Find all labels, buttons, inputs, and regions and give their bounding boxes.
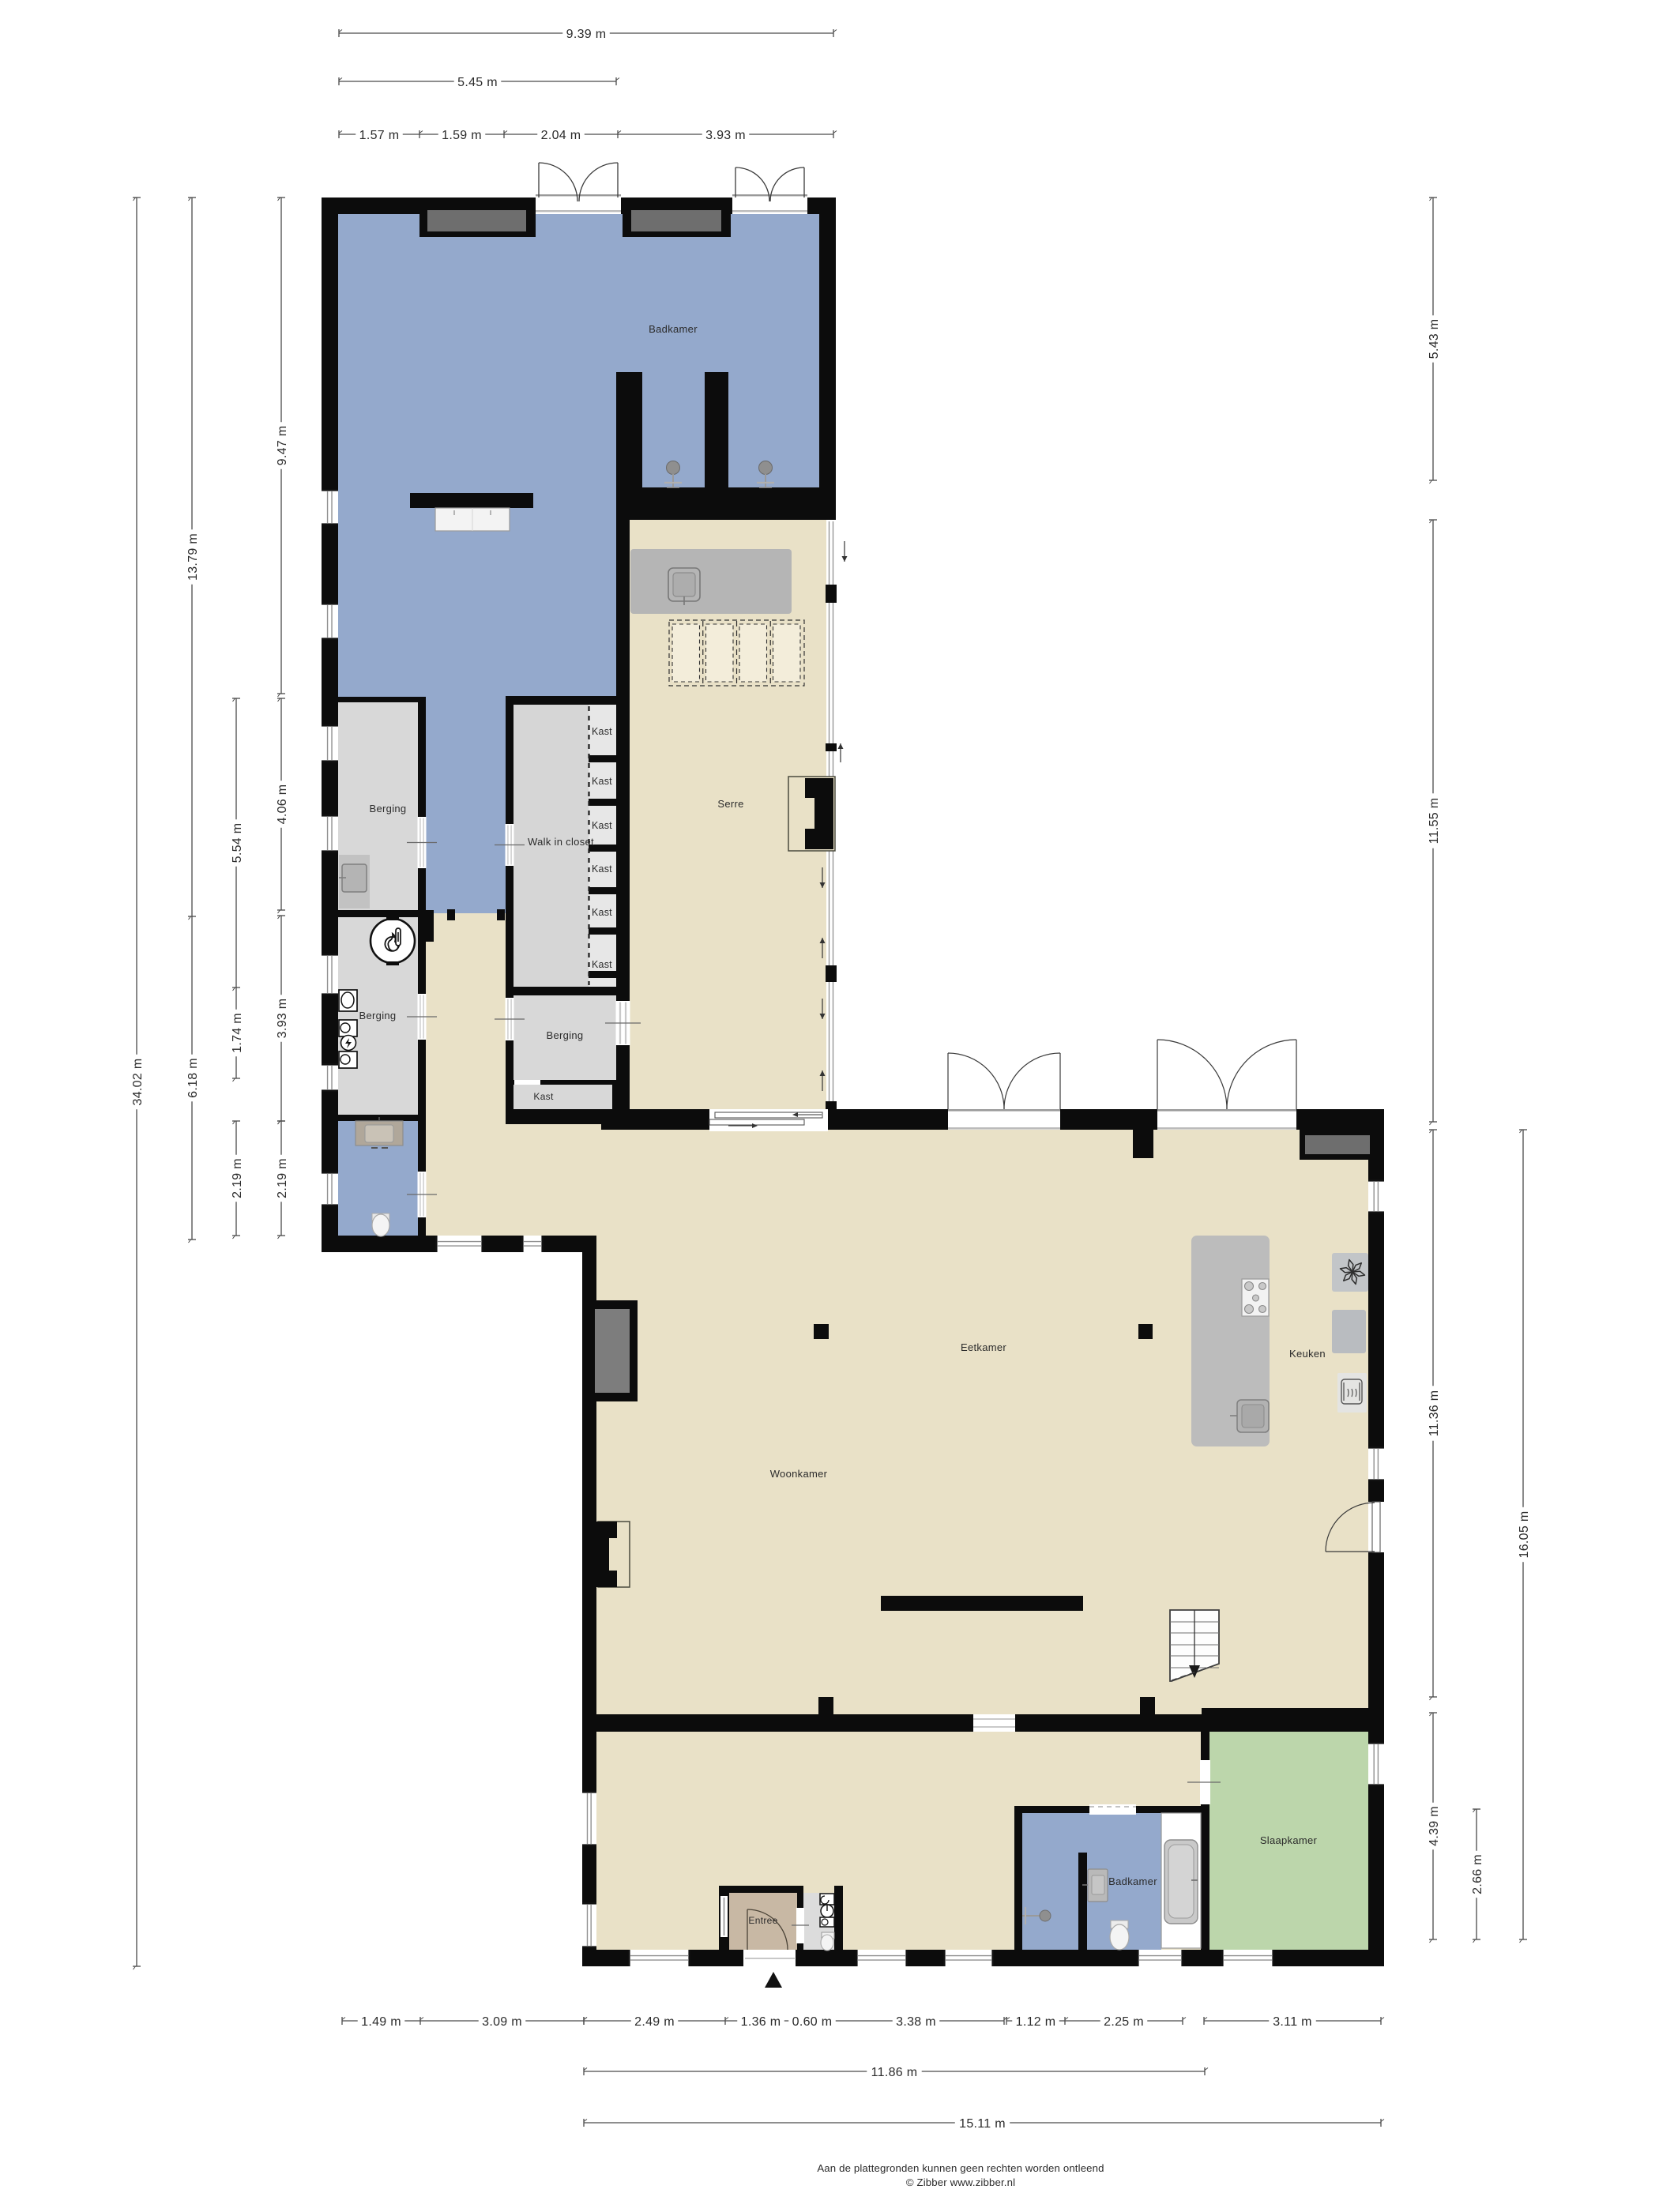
svg-text:Slaapkamer: Slaapkamer	[1260, 1834, 1318, 1846]
svg-text:2.19 m: 2.19 m	[231, 1158, 244, 1198]
svg-text:Kast: Kast	[533, 1091, 554, 1102]
svg-text:15.11 m: 15.11 m	[959, 2117, 1006, 2131]
svg-text:1.12 m: 1.12 m	[1016, 2015, 1056, 2029]
svg-text:1.74 m: 1.74 m	[231, 1013, 244, 1053]
svg-text:Berging: Berging	[359, 1010, 397, 1021]
svg-text:1.36 m: 1.36 m	[741, 2015, 781, 2029]
svg-text:11.36 m: 11.36 m	[1428, 1390, 1441, 1437]
svg-text:2.49 m: 2.49 m	[634, 2015, 675, 2029]
svg-text:Kast: Kast	[592, 863, 612, 875]
svg-text:1.49 m: 1.49 m	[361, 2015, 401, 2029]
svg-text:© Zibber www.zibber.nl: © Zibber www.zibber.nl	[906, 2176, 1015, 2188]
svg-text:16.05 m: 16.05 m	[1518, 1511, 1531, 1559]
svg-text:Berging: Berging	[547, 1029, 584, 1041]
svg-text:2.04 m: 2.04 m	[541, 129, 581, 142]
svg-text:5.45 m: 5.45 m	[457, 76, 498, 89]
svg-text:Kast: Kast	[592, 959, 612, 970]
svg-text:Keuken: Keuken	[1289, 1348, 1326, 1360]
svg-text:0.60 m: 0.60 m	[792, 2015, 833, 2029]
svg-text:Kast: Kast	[592, 907, 612, 918]
svg-text:Badkamer: Badkamer	[649, 323, 698, 335]
svg-text:Kast: Kast	[592, 776, 612, 787]
svg-text:6.18 m: 6.18 m	[186, 1058, 200, 1098]
svg-text:5.54 m: 5.54 m	[231, 823, 244, 863]
svg-text:Entree: Entree	[748, 1915, 777, 1926]
svg-text:4.06 m: 4.06 m	[276, 784, 289, 825]
svg-text:3.93 m: 3.93 m	[276, 999, 289, 1039]
svg-text:1.59 m: 1.59 m	[442, 129, 482, 142]
svg-text:3.09 m: 3.09 m	[482, 2015, 522, 2029]
svg-text:2.19 m: 2.19 m	[276, 1158, 289, 1198]
svg-text:9.47 m: 9.47 m	[276, 426, 289, 466]
svg-text:3.11 m: 3.11 m	[1273, 2015, 1312, 2029]
svg-text:9.39 m: 9.39 m	[566, 28, 607, 41]
svg-text:1.57 m: 1.57 m	[359, 129, 400, 142]
svg-text:34.02 m: 34.02 m	[131, 1059, 145, 1106]
svg-text:Kast: Kast	[592, 820, 612, 831]
svg-text:13.79 m: 13.79 m	[186, 533, 200, 581]
svg-text:Kast: Kast	[592, 726, 612, 737]
svg-text:Badkamer: Badkamer	[1108, 1875, 1157, 1887]
svg-text:Aan de plattegronden kunnen ge: Aan de plattegronden kunnen geen rechten…	[817, 2162, 1104, 2174]
svg-text:3.93 m: 3.93 m	[705, 129, 746, 142]
svg-text:Woonkamer: Woonkamer	[770, 1468, 828, 1480]
svg-text:Berging: Berging	[370, 803, 407, 814]
svg-text:11.55 m: 11.55 m	[1428, 798, 1441, 845]
svg-text:5.43 m: 5.43 m	[1428, 319, 1441, 359]
svg-text:2.66 m: 2.66 m	[1471, 1854, 1484, 1894]
svg-text:Walk in closet: Walk in closet	[528, 836, 594, 848]
svg-text:Serre: Serre	[717, 798, 743, 810]
svg-text:2.25 m: 2.25 m	[1104, 2015, 1144, 2029]
svg-text:3.38 m: 3.38 m	[896, 2015, 936, 2029]
svg-text:4.39 m: 4.39 m	[1428, 1806, 1441, 1846]
svg-text:11.86 m: 11.86 m	[871, 2066, 918, 2079]
svg-text:Eetkamer: Eetkamer	[961, 1341, 1006, 1353]
